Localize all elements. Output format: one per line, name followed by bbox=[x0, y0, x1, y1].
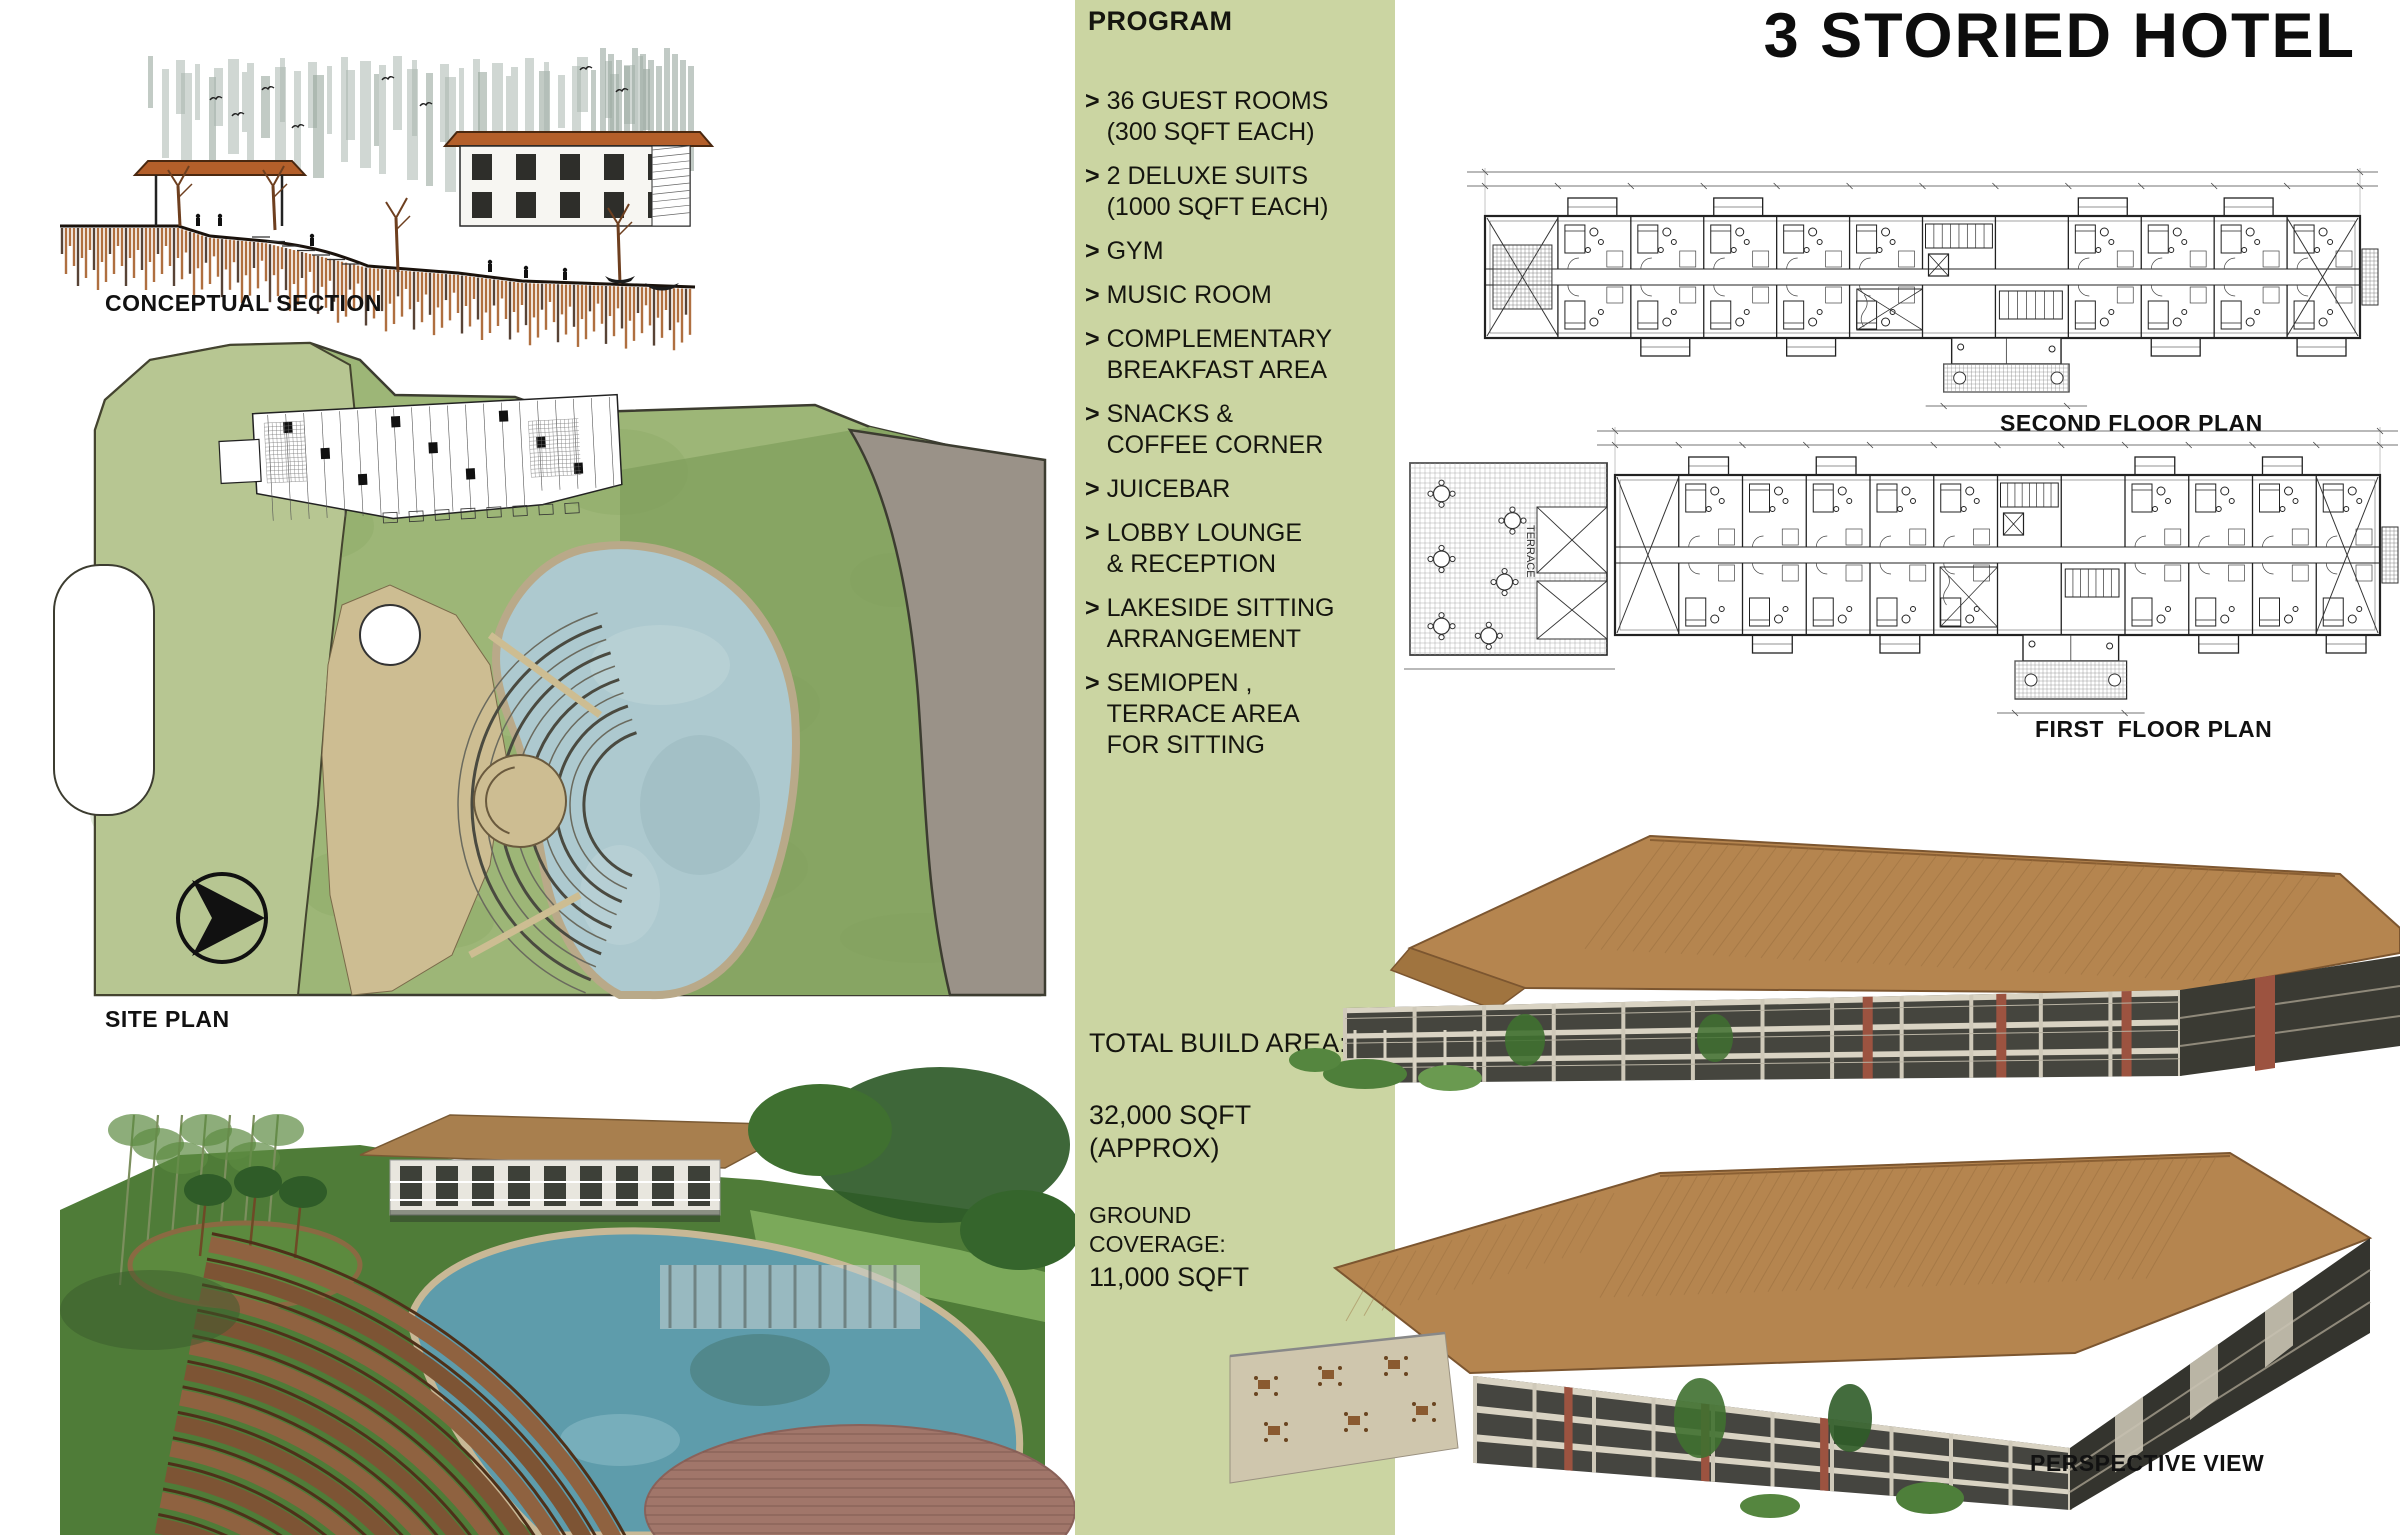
program-item: >LOBBY LOUNGE& RECEPTION bbox=[1085, 518, 1391, 580]
arrow-bullet-icon: > bbox=[1085, 668, 1100, 761]
arrow-bullet-icon: > bbox=[1085, 86, 1100, 148]
arrow-bullet-icon: > bbox=[1085, 399, 1100, 461]
presentation-board: CONCEPTUAL SECTION SITE PLAN PROGRAM >36… bbox=[0, 0, 2400, 1535]
second-floor-plan-drawing bbox=[1455, 78, 2395, 410]
conceptual-section-sketch bbox=[60, 40, 695, 290]
program-item: >LAKESIDE SITTINGARRANGEMENT bbox=[1085, 593, 1391, 655]
arrow-bullet-icon: > bbox=[1085, 161, 1100, 223]
program-list: >36 GUEST ROOMS(300 SQFT EACH)>2 DELUXE … bbox=[1085, 86, 1391, 774]
perspective-view-label: PERSPECTIVE VIEW bbox=[2030, 1450, 2264, 1477]
first-floor-plan-drawing: TERRACE bbox=[1405, 430, 2395, 715]
svg-text:TERRACE: TERRACE bbox=[1524, 525, 1536, 578]
program-item: >2 DELUXE SUITS(1000 SQFT EACH) bbox=[1085, 161, 1391, 223]
conceptual-section-label: CONCEPTUAL SECTION bbox=[105, 290, 382, 317]
board-title: 3 STORIED HOTEL bbox=[1764, 0, 2356, 72]
program-item: >COMPLEMENTARYBREAKFAST AREA bbox=[1085, 324, 1391, 386]
program-heading: PROGRAM bbox=[1088, 6, 1233, 37]
arrow-bullet-icon: > bbox=[1085, 236, 1100, 267]
site-plan-drawing bbox=[60, 335, 1045, 1000]
program-item: >36 GUEST ROOMS(300 SQFT EACH) bbox=[1085, 86, 1391, 148]
exterior-render-pool-view bbox=[60, 1060, 1045, 1535]
program-item: >GYM bbox=[1085, 236, 1391, 267]
program-item: >SEMIOPEN ,TERRACE AREAFOR SITTING bbox=[1085, 668, 1391, 761]
first-floor-plan-label: FIRST FLOOR PLAN bbox=[2035, 716, 2272, 743]
arrow-bullet-icon: > bbox=[1085, 324, 1100, 386]
arrow-bullet-icon: > bbox=[1085, 593, 1100, 655]
perspective-render-top bbox=[1195, 778, 2400, 1083]
arrow-bullet-icon: > bbox=[1085, 474, 1100, 505]
program-item: >SNACKS &COFFEE CORNER bbox=[1085, 399, 1391, 461]
program-item: >MUSIC ROOM bbox=[1085, 280, 1391, 311]
arrow-bullet-icon: > bbox=[1085, 518, 1100, 580]
program-item: >JUICEBAR bbox=[1085, 474, 1391, 505]
arrow-bullet-icon: > bbox=[1085, 280, 1100, 311]
site-plan-label: SITE PLAN bbox=[105, 1006, 230, 1033]
